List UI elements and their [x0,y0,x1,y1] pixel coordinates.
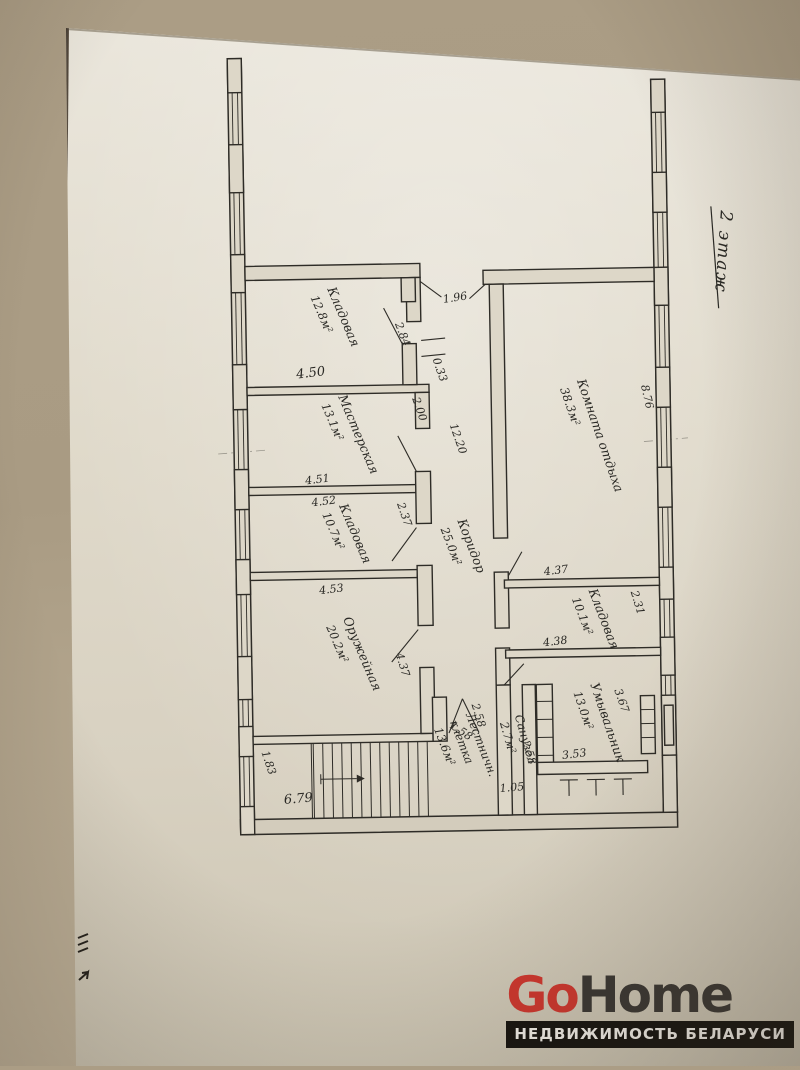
dim-workshop-width: 4.51 [303,472,330,488]
dim-armory-side: 4.37 [392,650,412,678]
dim-toilet-width: 1.05 [499,780,525,795]
gohome-logo: GoHome [506,972,794,1018]
dim-storage2-width-bottom: 4.53 [317,581,344,597]
dim-stair-width: 6.79 [283,790,313,807]
logo-tagline: НЕДВИЖИМОСТЬ БЕЛАРУСИ [506,1021,794,1048]
dim-storage2-width-top: 4.52 [310,493,337,509]
plumbing-fixture-icons [560,779,632,796]
logo-home: Home [578,966,732,1024]
bottom-exterior-wall [240,812,677,835]
paper-left-edge [54,26,69,1070]
staircase [311,741,428,818]
dim-washroom-side: 3.67 [611,687,631,714]
dim-storage3-width-bottom: 4.38 [541,633,568,649]
floor-title: 2 этаж [709,206,738,308]
dim-corridor-length: 12.20 [447,422,470,456]
dim-stair-landing-side: 1.83 [258,749,278,776]
dim-storage1-width: 4.50 [294,364,326,383]
room-label-rest-room: Комната отдыха [574,376,627,494]
gohome-watermark: GoHome НЕДВИЖИМОСТЬ БЕЛАРУСИ [506,972,794,1048]
dim-pier-height: 2.37 [394,500,415,528]
dim-storage1-door-side: 2.84 [392,319,413,347]
floor-plan-drawing: Кладовая 12.8м² Мастерская 13.1м² Кладов… [211,35,800,855]
dim-storage3-side: 2.31 [627,588,647,616]
dim-rest-room-side: 8.76 [638,383,656,410]
dim-storage3-width-top: 4.37 [542,562,569,578]
floor-plan: Кладовая 12.8м² Мастерская 13.1м² Кладов… [211,35,800,855]
logo-go: Go [506,966,577,1024]
floor-title-text: 2 этаж [710,209,736,295]
pen-marks [74,928,104,998]
dim-washroom-width: 3.53 [561,746,587,762]
dim-corridor-top-door: 1.96 [442,289,468,306]
dim-wall-offset: 0.33 [430,356,450,383]
